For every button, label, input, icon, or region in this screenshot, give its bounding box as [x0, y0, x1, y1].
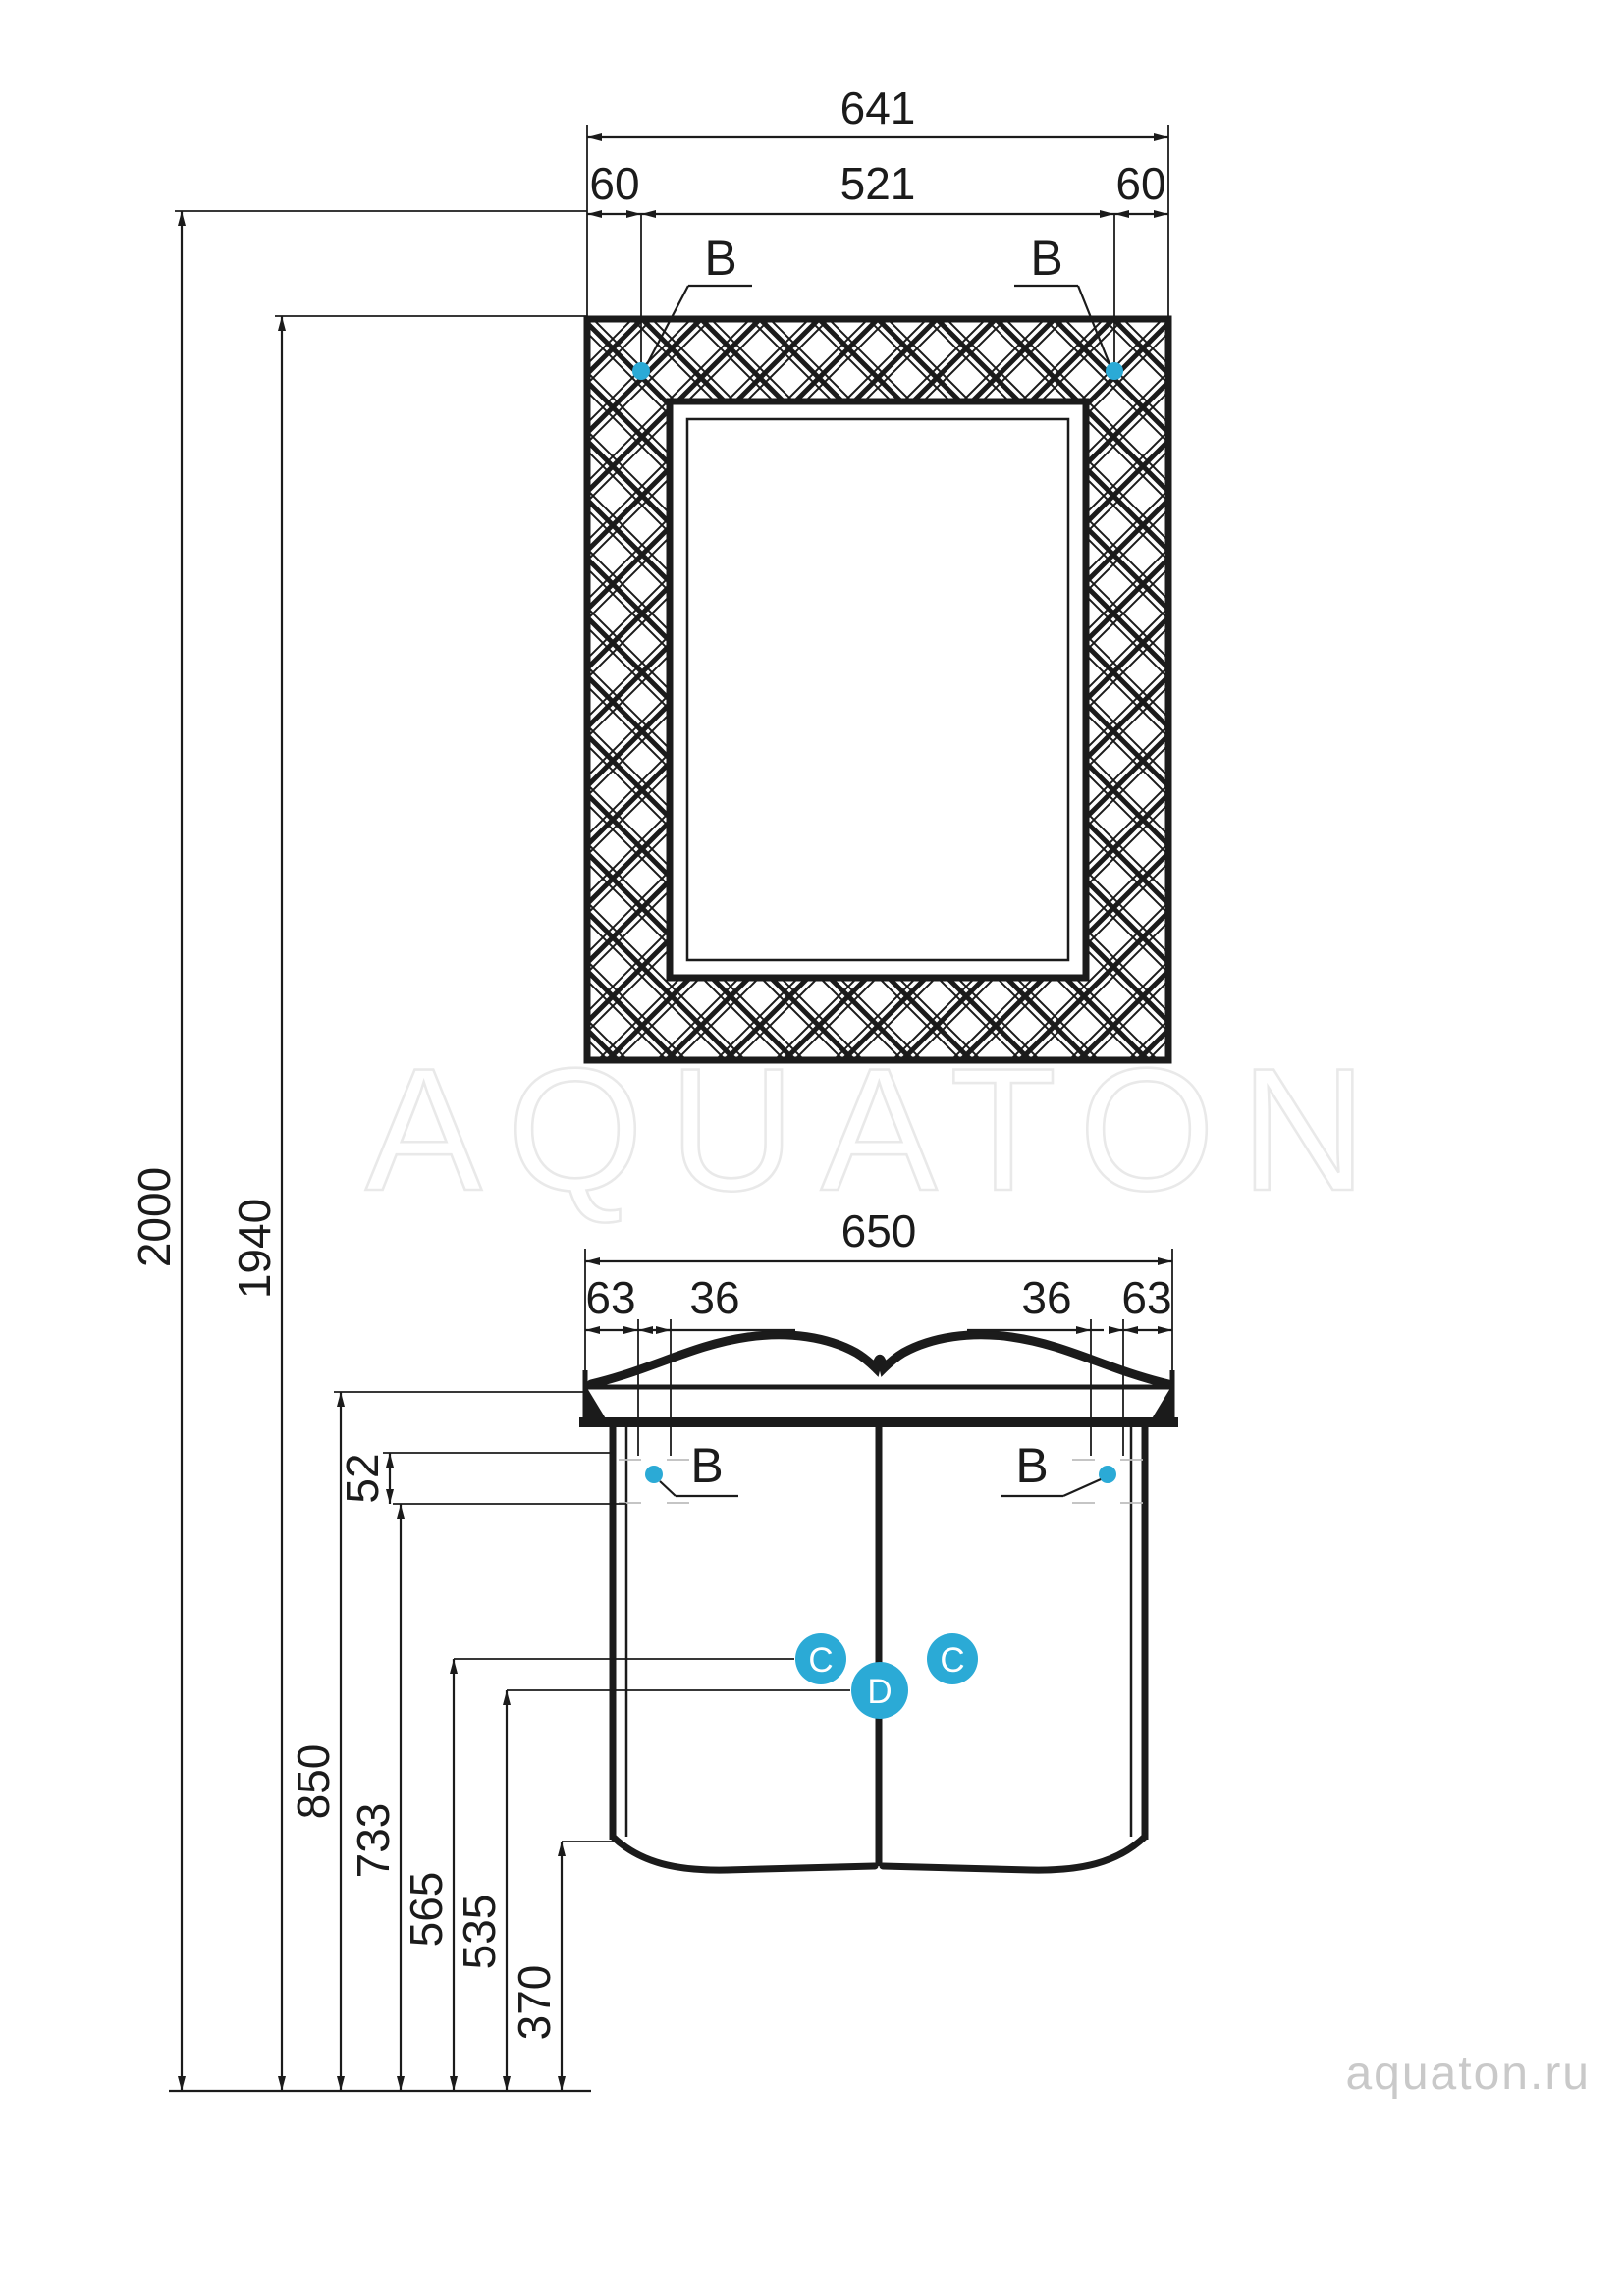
connector-marker-label: D — [867, 1673, 892, 1711]
furniture-dimension-drawing: AQUATON aquaton.ru 641 60 521 60 B B 2 — [0, 0, 1624, 2296]
hinge-marker-left-label: C — [808, 1641, 833, 1680]
mount-label-b: B — [704, 231, 736, 286]
mirror-outer-frame — [587, 319, 1168, 1060]
mount-label-b: B — [1015, 1438, 1048, 1493]
dim-cabinet-left-36: 36 — [689, 1272, 739, 1323]
mount-point-dot — [1106, 362, 1123, 380]
technical-drawing-page: AQUATON aquaton.ru 641 60 521 60 B B 2 — [0, 0, 1624, 2296]
dim-mirror-right-offset: 60 — [1115, 158, 1165, 209]
hinge-marker-right-label: C — [940, 1641, 964, 1680]
mirror-front-view — [0, 260, 1624, 1119]
dim-cabinet-left-63: 63 — [585, 1272, 635, 1323]
mirror-glass-edge — [687, 419, 1068, 960]
worktop-left-edge — [587, 1388, 607, 1420]
left-door-bottom — [613, 1837, 875, 1870]
site-watermark: aquaton.ru — [1345, 2048, 1591, 2100]
dim-hinge-535: 535 — [454, 1895, 505, 1970]
mount-label-b: B — [1030, 231, 1062, 286]
dim-mirror-top-height: 1940 — [229, 1199, 280, 1299]
cabinet-front-view: B B C D C — [579, 1319, 1178, 1870]
dim-worktop-850: 850 — [288, 1744, 339, 1820]
dim-hinge-565: 565 — [401, 1872, 452, 1948]
right-door-bottom — [883, 1837, 1145, 1870]
mount-label-b: B — [690, 1438, 723, 1493]
dim-mirror-left-offset: 60 — [589, 158, 639, 209]
dim-cabinet-width: 650 — [841, 1205, 917, 1256]
mirror-lattice-pattern — [0, 260, 1624, 1119]
dim-apron-bottom-733: 733 — [348, 1803, 399, 1879]
worktop-right-edge — [1151, 1388, 1170, 1420]
mount-point-dot — [632, 362, 650, 380]
dim-apron-52: 52 — [337, 1453, 388, 1503]
dim-bottom-370: 370 — [509, 1965, 560, 2041]
mount-point-dot — [1099, 1466, 1116, 1483]
dim-mirror-mount-spacing: 521 — [840, 158, 916, 209]
mirror-inner-frame — [670, 401, 1086, 978]
dim-overall-height: 2000 — [129, 1167, 180, 1267]
dim-cabinet-right-63: 63 — [1121, 1272, 1171, 1323]
backsplash-profile — [591, 1335, 1168, 1384]
dim-mirror-width: 641 — [840, 82, 916, 133]
dim-cabinet-right-36: 36 — [1021, 1272, 1071, 1323]
mount-point-dot — [645, 1466, 663, 1483]
